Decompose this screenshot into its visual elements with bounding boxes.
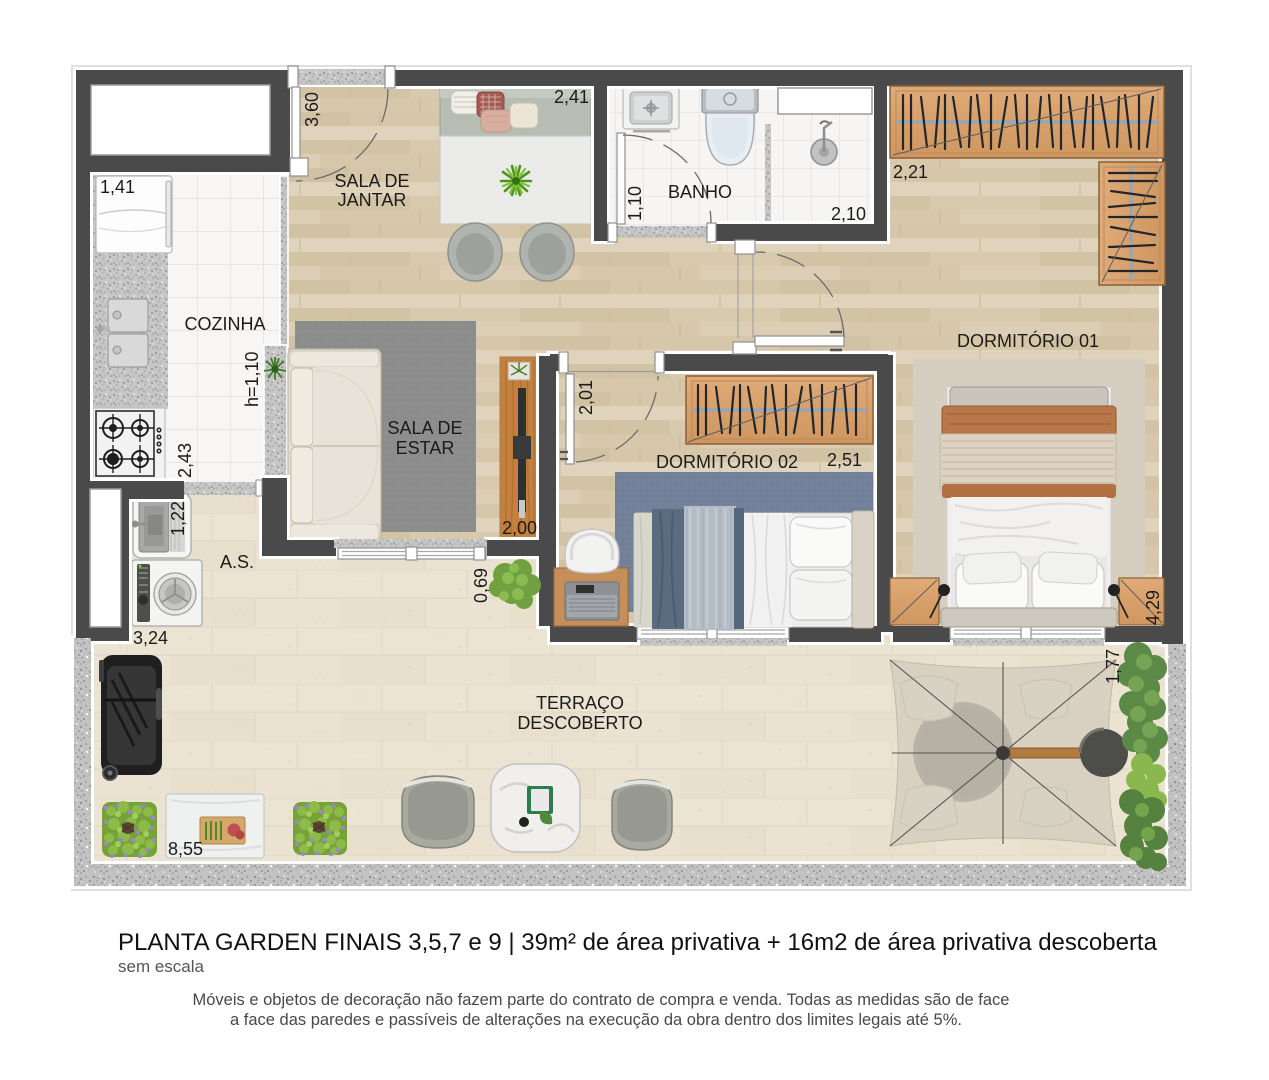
svg-text:2,43: 2,43 bbox=[175, 443, 195, 478]
svg-text:2,41: 2,41 bbox=[554, 87, 589, 107]
svg-text:sem escala: sem escala bbox=[118, 957, 205, 976]
svg-text:3,60: 3,60 bbox=[302, 92, 322, 127]
svg-text:ESTAR: ESTAR bbox=[396, 438, 455, 458]
svg-text:BANHO: BANHO bbox=[668, 182, 732, 202]
svg-text:PLANTA GARDEN FINAIS 3,5,7 e 9: PLANTA GARDEN FINAIS 3,5,7 e 9 | 39m² de… bbox=[118, 929, 1158, 956]
svg-text:1,22: 1,22 bbox=[168, 501, 188, 536]
svg-text:Móveis e objetos de decoração: Móveis e objetos de decoração não fazem … bbox=[193, 991, 1010, 1009]
svg-text:8,55: 8,55 bbox=[168, 839, 203, 859]
svg-text:DESCOBERTO: DESCOBERTO bbox=[517, 713, 642, 733]
svg-text:1,77: 1,77 bbox=[1103, 649, 1123, 684]
svg-text:2,21: 2,21 bbox=[893, 162, 928, 182]
svg-text:TERRAÇO: TERRAÇO bbox=[536, 693, 624, 713]
svg-text:JANTAR: JANTAR bbox=[338, 190, 407, 210]
svg-text:4,29: 4,29 bbox=[1143, 590, 1163, 625]
svg-text:2,10: 2,10 bbox=[831, 204, 866, 224]
svg-text:1,41: 1,41 bbox=[100, 177, 135, 197]
svg-text:2,51: 2,51 bbox=[827, 450, 862, 470]
svg-text:SALA DE: SALA DE bbox=[387, 418, 462, 438]
svg-text:2,00: 2,00 bbox=[502, 518, 537, 538]
svg-text:COZINHA: COZINHA bbox=[185, 314, 266, 334]
svg-text:DORMITÓRIO 02: DORMITÓRIO 02 bbox=[656, 451, 798, 472]
svg-text:SALA DE: SALA DE bbox=[334, 171, 409, 191]
svg-text:1,10: 1,10 bbox=[625, 186, 645, 221]
svg-text:a face das paredes e passíveis: a face das paredes e passíveis de altera… bbox=[230, 1011, 962, 1029]
svg-text:0,69: 0,69 bbox=[471, 568, 491, 603]
svg-text:A.S.: A.S. bbox=[220, 552, 254, 572]
svg-text:DORMITÓRIO 01: DORMITÓRIO 01 bbox=[957, 330, 1099, 351]
svg-text:h=1,10: h=1,10 bbox=[242, 351, 262, 407]
svg-text:2,01: 2,01 bbox=[576, 380, 596, 415]
svg-text:3,24: 3,24 bbox=[133, 628, 168, 648]
